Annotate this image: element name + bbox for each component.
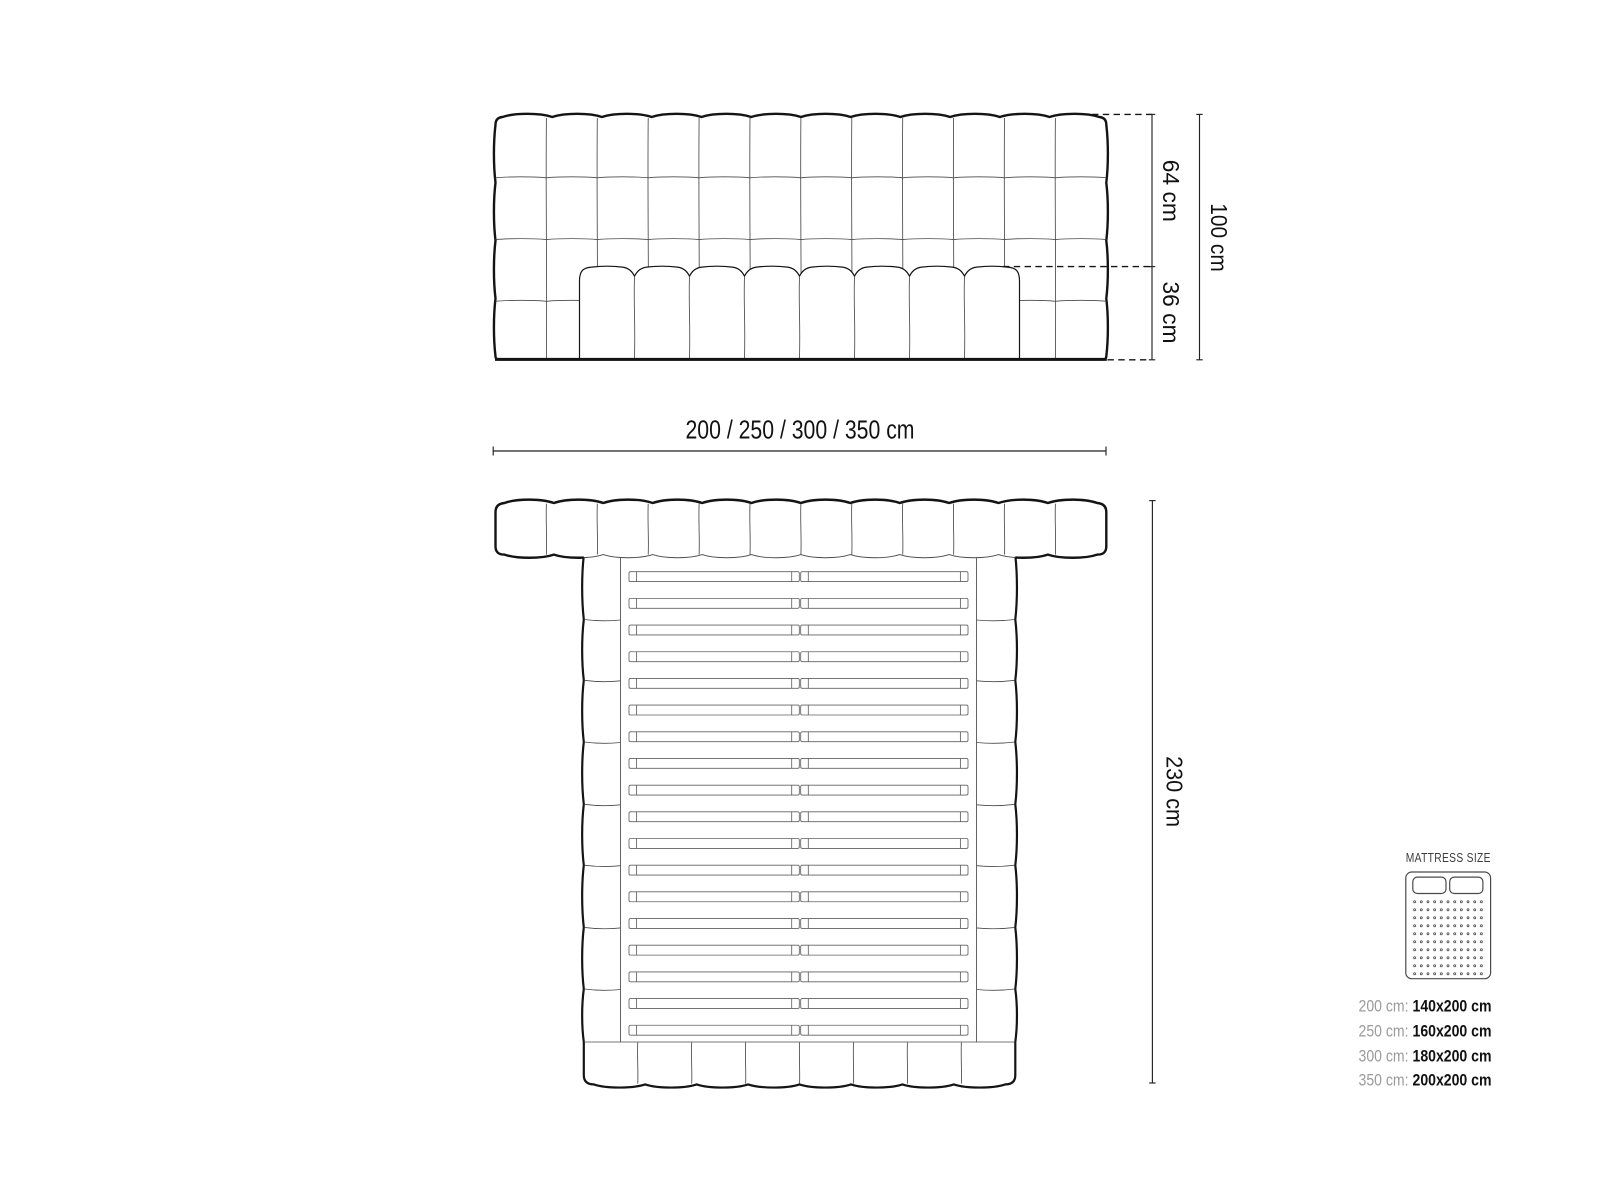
svg-text:64 cm: 64 cm xyxy=(1158,160,1184,222)
svg-text:200x200 cm: 200x200 cm xyxy=(1413,1071,1492,1090)
svg-text:140x200 cm: 140x200 cm xyxy=(1413,996,1492,1015)
svg-text:350 cm:: 350 cm: xyxy=(1359,1071,1409,1090)
svg-text:230 cm: 230 cm xyxy=(1162,756,1188,827)
svg-text:300 cm:: 300 cm: xyxy=(1359,1046,1409,1065)
svg-text:36 cm: 36 cm xyxy=(1158,282,1184,344)
svg-text:100 cm: 100 cm xyxy=(1206,203,1232,272)
svg-text:250 cm:: 250 cm: xyxy=(1359,1021,1409,1040)
svg-text:200 cm:: 200 cm: xyxy=(1359,996,1409,1015)
svg-text:160x200 cm: 160x200 cm xyxy=(1413,1021,1492,1040)
svg-text:180x200 cm: 180x200 cm xyxy=(1413,1046,1492,1065)
svg-text:MATTRESS SIZE: MATTRESS SIZE xyxy=(1406,850,1491,865)
svg-text:200 / 250 / 300 / 350 cm: 200 / 250 / 300 / 350 cm xyxy=(686,417,915,445)
